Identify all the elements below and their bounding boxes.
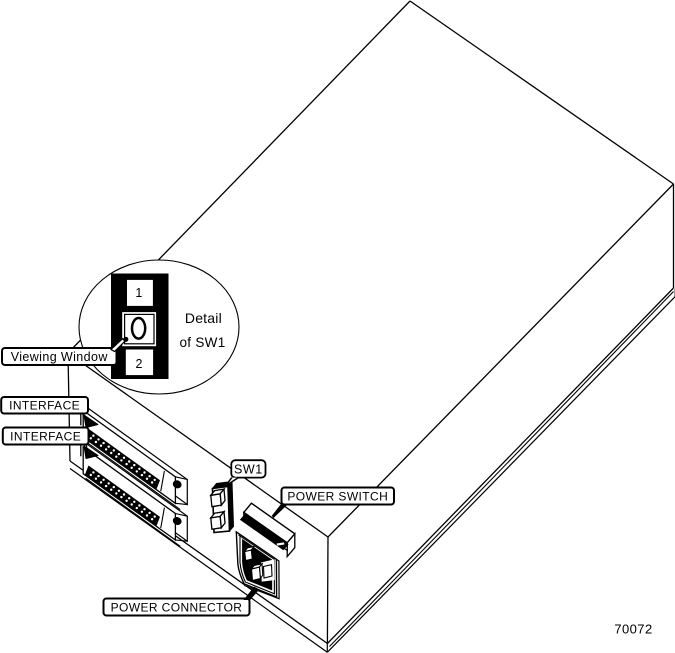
svg-text:Viewing Window: Viewing Window <box>11 350 109 364</box>
svg-text:70072: 70072 <box>614 622 652 637</box>
svg-text:SW1: SW1 <box>234 462 263 476</box>
svg-text:INTERFACE: INTERFACE <box>10 429 81 443</box>
svg-text:INTERFACE: INTERFACE <box>9 399 80 413</box>
svg-text:Detail: Detail <box>185 310 222 326</box>
svg-text:1: 1 <box>135 286 142 300</box>
svg-text:POWER SWITCH: POWER SWITCH <box>287 489 388 503</box>
svg-text:POWER CONNECTOR: POWER CONNECTOR <box>111 600 243 614</box>
svg-text:of SW1: of SW1 <box>179 335 225 350</box>
svg-text:2: 2 <box>136 357 143 371</box>
